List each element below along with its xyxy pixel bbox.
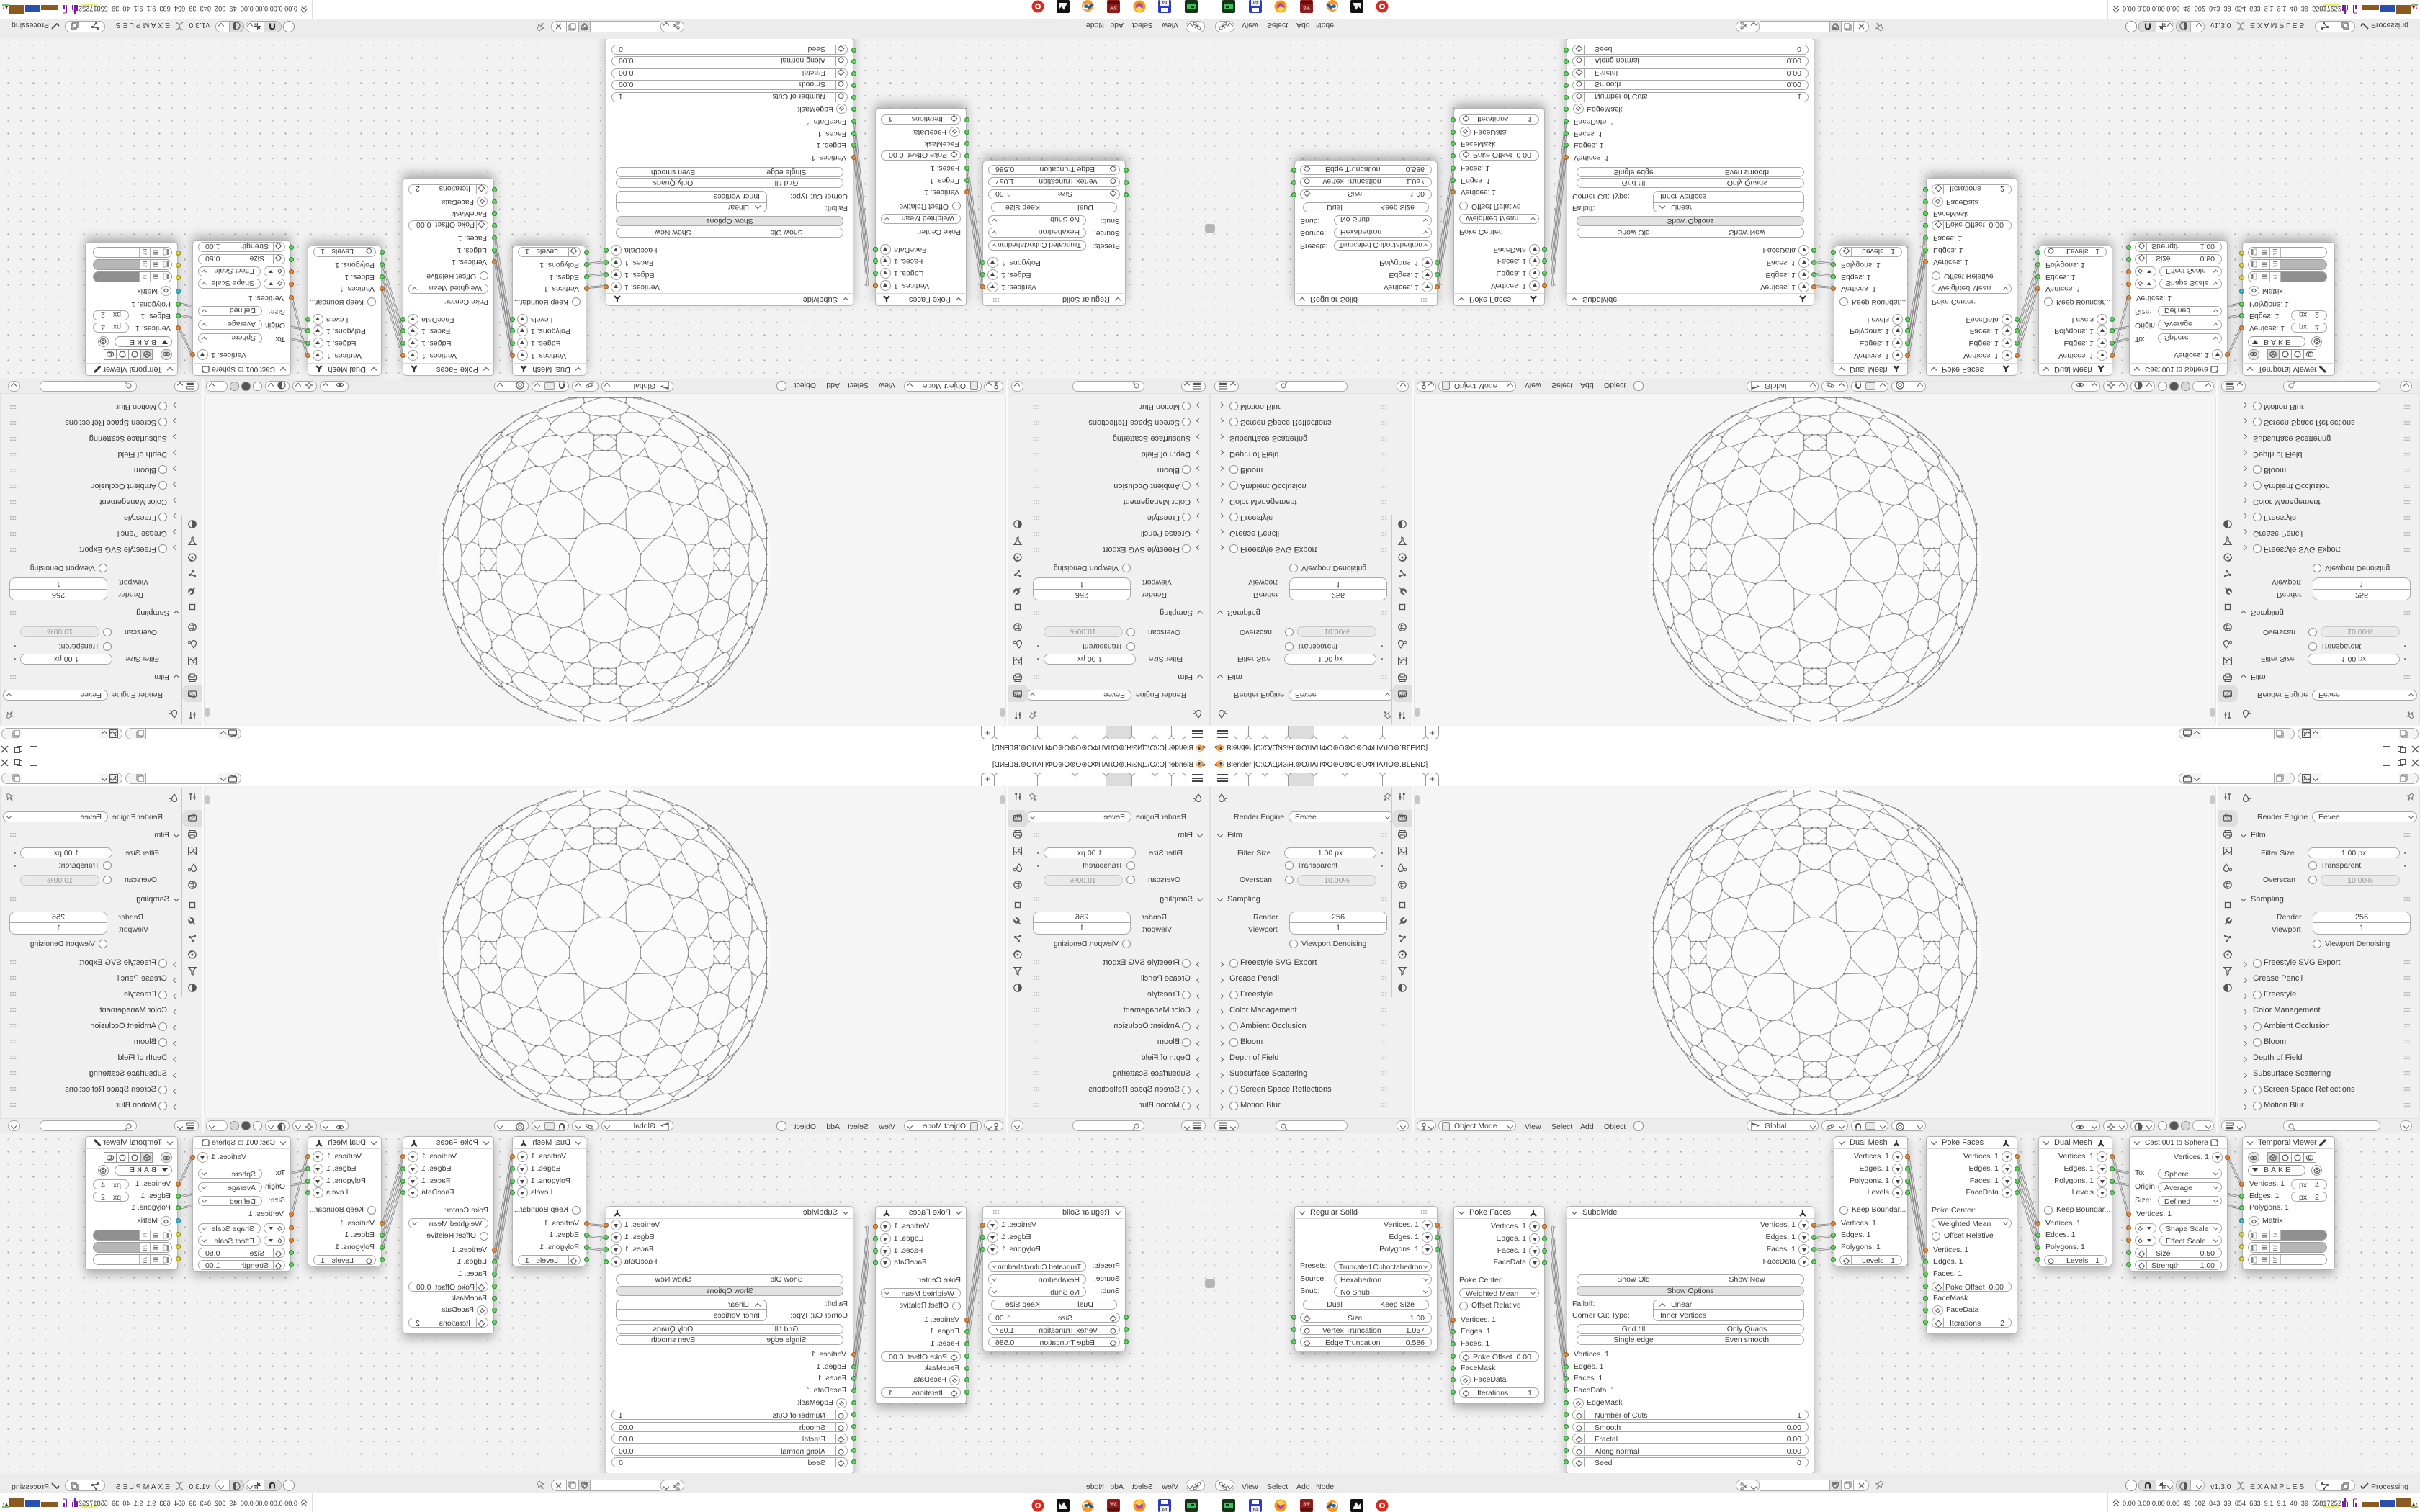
svg-text:SW: SW — [1110, 1503, 1117, 1507]
svg-text:SW: SW — [1303, 1503, 1310, 1507]
svg-text:64: 64 — [1162, 1, 1167, 5]
svg-text:64: 64 — [1253, 1, 1258, 5]
svg-text:64: 64 — [1253, 1508, 1258, 1512]
svg-text:SW: SW — [1303, 6, 1310, 10]
svg-text:64: 64 — [1162, 1508, 1167, 1512]
svg-text:SW: SW — [1110, 6, 1117, 10]
